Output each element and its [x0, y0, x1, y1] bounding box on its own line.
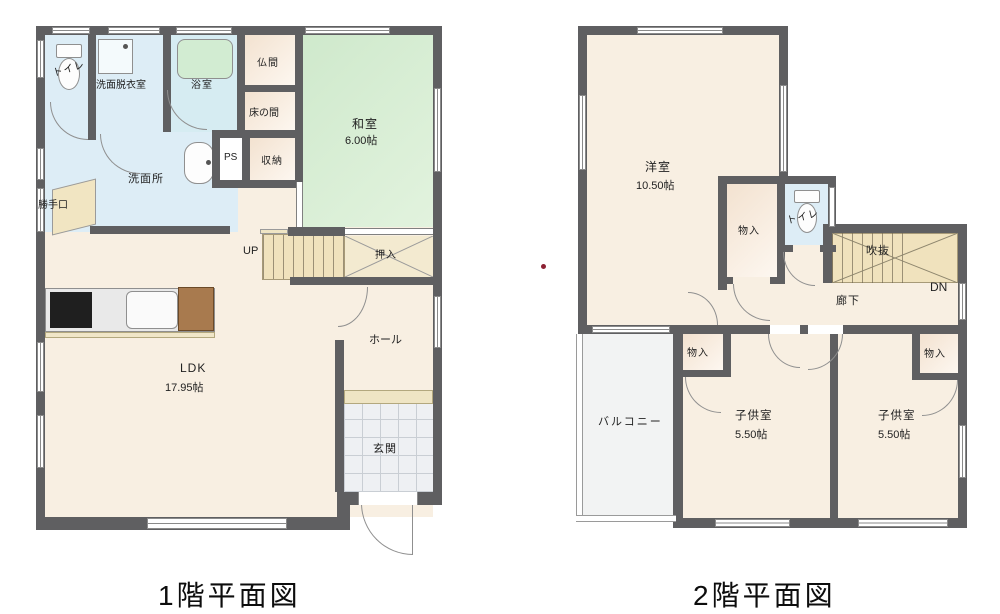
- f2-balcony-sliding-window: [592, 326, 670, 333]
- f2-wall-monoire-hall-right: [777, 184, 785, 284]
- f1-wall-butsuma-tokonoma: [245, 85, 295, 92]
- f2-wall-fukinuke-left: [823, 224, 832, 283]
- f1-wall-senmenjo-ldk: [90, 226, 230, 234]
- f2-label-rouka: 廊下: [836, 292, 860, 308]
- f2-label-kodomo-left-size: 5.50帖: [735, 426, 767, 442]
- f1-refrigerator: [178, 287, 214, 331]
- floor1-title: 1階平面図: [158, 574, 301, 614]
- f1-stove: [50, 292, 92, 328]
- f1-wall-bath-butsuma: [237, 35, 245, 132]
- f2-window-toilet-right: [829, 187, 835, 227]
- f1-label-hall: ホール: [369, 331, 402, 347]
- f1-label-genkan: 玄関: [373, 440, 397, 456]
- f1-window-top-washitsu: [305, 27, 390, 34]
- f1-counter-edge: [45, 332, 215, 338]
- f2-balcony-rail-left: [576, 334, 583, 522]
- f2-wall-monoire-hall-bottom-l: [718, 277, 733, 284]
- f2-label-monoire-hall: 物入: [738, 222, 760, 237]
- f2-wall-toilet-bottom-l: [785, 245, 793, 252]
- f1-wall-datsui-bath: [163, 35, 171, 132]
- f1-label-tokonoma: 床の間: [249, 104, 279, 119]
- f2-label-monoire-left: 物入: [687, 344, 709, 359]
- f2-wall-band-top-b: [800, 325, 808, 334]
- f1-wall-ps-left: [212, 138, 220, 180]
- f1-window-right-hall: [434, 296, 441, 348]
- f2-label-fukinuke: 吹抜: [866, 242, 890, 258]
- f2-window-right-corridor: [959, 283, 966, 320]
- f1-window-left-toilet: [37, 40, 44, 78]
- f1-laundry-pan: [98, 39, 133, 74]
- f2-label-yoshitsu-size: 10.50帖: [636, 177, 675, 193]
- f2-wall-left: [578, 26, 587, 334]
- f1-wall-over-ps: [212, 130, 295, 138]
- f2-label-dn: DN: [930, 280, 947, 294]
- f1-wall-washitsu-left: [295, 35, 303, 180]
- f1-agari-kamachi: [344, 390, 433, 404]
- f1-label-katteguchi: 勝手口: [38, 196, 68, 211]
- red-dot-mark: [541, 264, 546, 269]
- f1-label-bath: 浴室: [191, 76, 213, 91]
- f1-laundry-drain: [123, 44, 128, 49]
- f1-window-left-ldk-upper: [37, 342, 44, 392]
- f2-wall-right: [958, 224, 967, 528]
- f2-label-balcony: バルコニー: [598, 413, 663, 429]
- f1-washbasin-faucet: [206, 160, 211, 165]
- f2-balcony-rail-bottom: [576, 515, 676, 522]
- f2-wall-monoire-hall-left: [718, 184, 727, 290]
- f2-window-top-yoshitsu: [637, 27, 723, 34]
- floor-plan-canvas: トイレ 洗面脱衣室 浴室 仏間 床の間 PS 収納 和室 6.00帖 洗面所 勝…: [0, 0, 1000, 614]
- f1-wall-toilet-datsui: [88, 35, 96, 140]
- floor2-title: 2階平面図: [693, 574, 836, 614]
- f2-window-left-yoshitsu: [579, 95, 586, 170]
- f1-sink: [126, 291, 178, 329]
- f2-wall-balcony-kodomo: [673, 334, 683, 520]
- f2-wall-monoire-hall-bottom-r: [770, 277, 785, 284]
- f1-window-top-datsui: [108, 27, 160, 34]
- f1-entrance-door-leaf: [412, 503, 413, 555]
- f1-wall-hall-ldk: [335, 340, 344, 492]
- f2-wall-band-top-c: [843, 325, 967, 334]
- f2-label-kodomo-left: 子供室: [735, 407, 773, 423]
- f2-wall-monoire-right-bottom: [912, 373, 958, 380]
- f1-label-shuno: 収納: [261, 152, 283, 167]
- f2-window-bottom-kodomo-right: [858, 519, 948, 527]
- f1-label-ps: PS: [224, 152, 237, 163]
- f1-label-ldk: LDK: [180, 361, 206, 375]
- f1-window-right-washitsu: [434, 88, 441, 172]
- f1-wall-under-shuno: [212, 180, 303, 188]
- f1-window-top-toilet: [52, 27, 90, 34]
- f1-entrance-door-arc: [361, 503, 413, 555]
- f1-label-up: UP: [243, 245, 258, 257]
- f1-window-left-ldk-lower: [37, 415, 44, 468]
- f1-label-senmen-datsui: 洗面脱衣室: [96, 76, 146, 91]
- f2-label-kodomo-right-size: 5.50帖: [878, 426, 910, 442]
- f2-window-right-kodomo: [959, 425, 966, 478]
- f1-label-ldk-size: 17.95帖: [165, 379, 204, 395]
- f2-label-kodomo-right: 子供室: [878, 407, 916, 423]
- f1-label-washitsu-size: 6.00帖: [345, 132, 377, 148]
- f1-window-left-senmenjo: [37, 148, 44, 180]
- f2-label-yoshitsu: 洋室: [645, 158, 671, 175]
- f2-window-bottom-kodomo-left: [715, 519, 790, 527]
- f1-washitsu-side-sliding-door: [296, 182, 303, 227]
- f1-oshiire-sliding-door: [345, 228, 433, 235]
- f1-entrance-opening: [358, 492, 418, 505]
- f2-label-monoire-right: 物入: [924, 345, 946, 360]
- f2-wall-fukinuke-top: [823, 224, 958, 233]
- f1-bathtub: [177, 39, 233, 79]
- f1-label-senmenjo: 洗面所: [128, 170, 164, 186]
- f2-wall-kodomo-divider: [830, 334, 838, 518]
- f2-fukinuke-cross: [832, 233, 958, 283]
- f1-label-butsuma: 仏間: [257, 54, 279, 69]
- f2-toilet-tank: [794, 190, 820, 203]
- f2-wall-mid-top: [718, 176, 836, 184]
- f2-wall-monoire-left-bottom: [683, 370, 731, 377]
- f1-wall-ps-right: [242, 138, 250, 180]
- f1-wall-stairs-bottom: [290, 277, 433, 285]
- f1-window-top-bath: [176, 27, 232, 34]
- f1-wall-stairs-top: [288, 227, 345, 236]
- f1-stairs-rail: [260, 229, 288, 234]
- f2-wall-monoire-right-left: [912, 334, 920, 373]
- f1-label-washitsu: 和室: [352, 115, 378, 132]
- f1-stairs: [262, 234, 345, 280]
- f1-window-bottom-ldk: [147, 518, 287, 529]
- f1-label-oshiire: 押入: [375, 246, 397, 261]
- f2-window-yoshitsu-right: [780, 85, 787, 172]
